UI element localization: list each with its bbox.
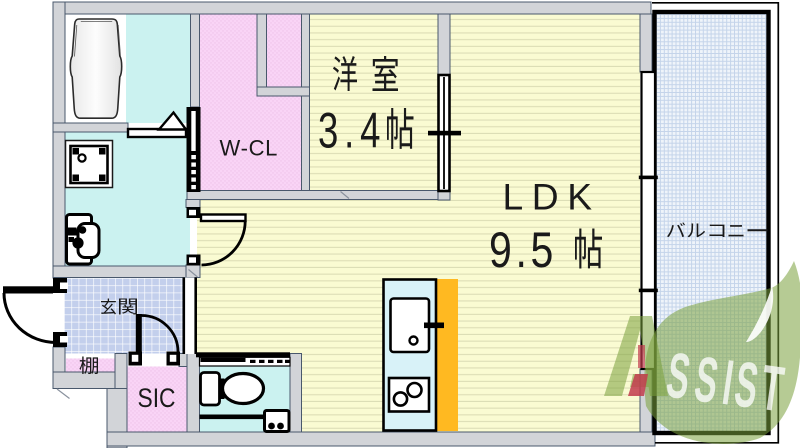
svg-text:9.5: 9.5 (489, 222, 557, 278)
svg-text:LDK: LDK (503, 176, 601, 218)
svg-text:W-CL: W-CL (220, 135, 279, 160)
svg-text:SIC: SIC (138, 384, 176, 413)
svg-text:3.4: 3.4 (318, 103, 386, 159)
